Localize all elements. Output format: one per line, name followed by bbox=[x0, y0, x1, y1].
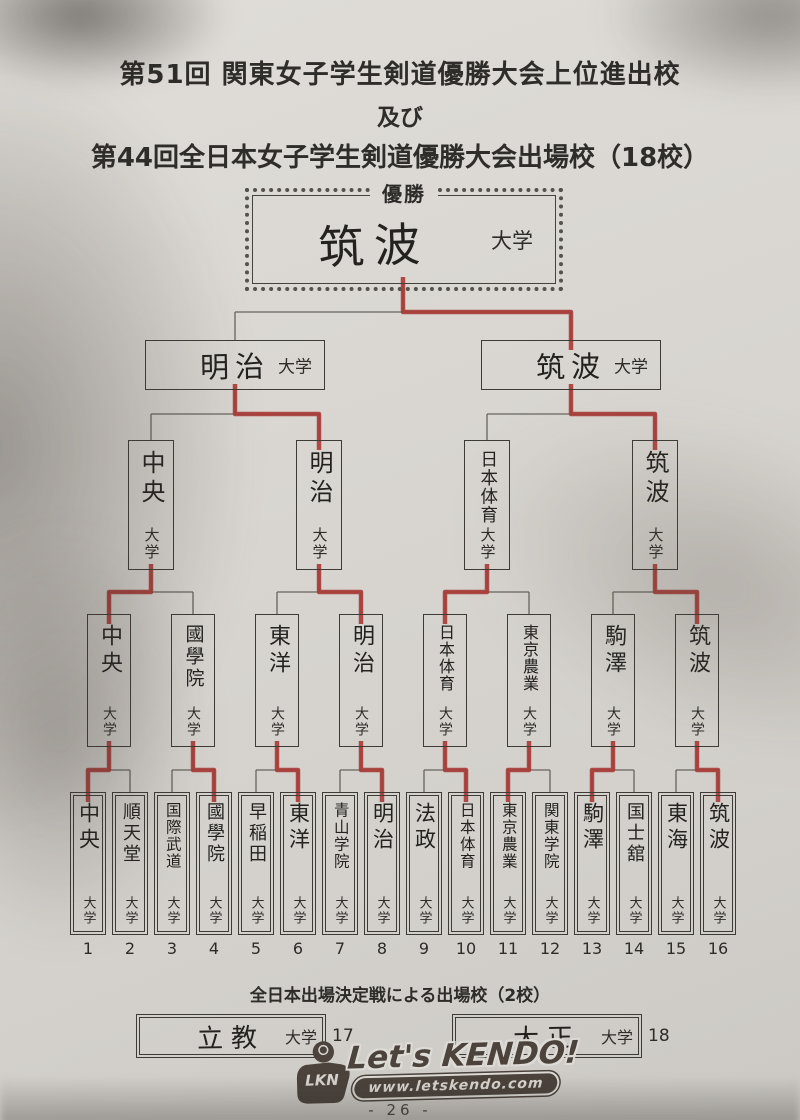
page-number: - 26 - bbox=[0, 1101, 800, 1119]
title-line-2: 及び bbox=[0, 98, 800, 132]
logo-badge-text: LKN bbox=[305, 1071, 339, 1090]
school-name: 中央 bbox=[139, 450, 163, 508]
school-name: 筑波 bbox=[536, 343, 607, 386]
school-name: 東京農業 bbox=[500, 802, 516, 870]
school-name: 日本体育 bbox=[437, 624, 453, 692]
school-suffix: 大学 bbox=[186, 706, 200, 738]
school-name: 國學院 bbox=[184, 624, 203, 690]
bracket-box-qf-1: 中央 大学 bbox=[128, 440, 174, 570]
bracket-box-semifinal-left: 明治 大学 bbox=[145, 340, 325, 390]
school-name: 東洋 bbox=[288, 802, 309, 854]
bracket-box-r16-2: 順天堂 大学 bbox=[112, 792, 148, 935]
logo-url-text: www.letskendo.com bbox=[354, 1073, 559, 1098]
school-name: 駒澤 bbox=[602, 624, 624, 678]
page-title: 第51回 関東女子学生剣道優勝大会上位進出校 及び 第44回全日本女子学生剣道優… bbox=[0, 54, 800, 174]
champion-school-suffix: 大学 bbox=[491, 225, 533, 255]
school-suffix: 大学 bbox=[628, 896, 641, 926]
school-suffix: 大学 bbox=[124, 896, 137, 926]
seed-number: 14 bbox=[616, 939, 652, 958]
school-name: 国士舘 bbox=[625, 802, 643, 865]
school-suffix: 大学 bbox=[586, 896, 599, 926]
champion-school-name: 筑波 bbox=[317, 208, 431, 278]
seed-number: 13 bbox=[574, 939, 610, 958]
school-suffix: 大学 bbox=[334, 896, 347, 926]
school-suffix: 大学 bbox=[438, 706, 452, 738]
bracket-box-r16-9: 法政 大学 bbox=[406, 792, 442, 935]
bracket-box-qf-2: 明治 大学 bbox=[296, 440, 342, 570]
seed-number: 5 bbox=[238, 939, 274, 958]
bracket-box-r8-3: 東洋 大学 bbox=[255, 614, 299, 747]
playoff-caption: 全日本出場決定戦による出場校（2校） bbox=[0, 981, 800, 1006]
school-suffix: 大学 bbox=[376, 896, 389, 926]
school-suffix: 大学 bbox=[278, 353, 312, 378]
champion-box-inner: 優勝 筑波 大学 bbox=[252, 195, 556, 284]
bracket-box-r8-4: 明治 大学 bbox=[339, 614, 383, 747]
bracket-box-r16-7: 青山学院 大学 bbox=[322, 792, 358, 935]
bracket-box-r8-1: 中央 大学 bbox=[87, 614, 131, 747]
bracket-box-r16-5: 早稲田 大学 bbox=[238, 792, 274, 935]
school-name: 立教 bbox=[197, 1017, 266, 1055]
bracket-box-r16-3: 国際武道 大学 bbox=[154, 792, 190, 935]
school-suffix: 大学 bbox=[312, 527, 327, 561]
bracket-box-r16-14: 国士舘 大学 bbox=[616, 792, 652, 935]
seed-number: 16 bbox=[700, 939, 736, 958]
school-suffix: 大学 bbox=[102, 706, 116, 738]
seed-number: 1 bbox=[70, 939, 106, 958]
school-name: 明治 bbox=[200, 343, 271, 386]
school-suffix: 大学 bbox=[544, 896, 557, 926]
school-name: 日本体育 bbox=[478, 450, 496, 524]
tournament-sheet: 第51回 関東女子学生剣道優勝大会上位進出校 及び 第44回全日本女子学生剣道優… bbox=[0, 0, 800, 1120]
school-name: 早稲田 bbox=[247, 802, 265, 865]
bracket-box-r16-8: 明治 大学 bbox=[364, 792, 400, 935]
logo-brand-text: Let's KENDO! bbox=[346, 1034, 580, 1076]
school-name: 駒澤 bbox=[582, 802, 603, 854]
school-name: 関東学院 bbox=[542, 802, 558, 870]
school-name: 筑波 bbox=[708, 802, 729, 854]
school-suffix: 大学 bbox=[460, 896, 473, 926]
school-suffix: 大学 bbox=[166, 896, 179, 926]
school-suffix: 大学 bbox=[250, 896, 263, 926]
bracket-box-r16-10: 日本体育 大学 bbox=[448, 792, 484, 935]
bracket-box-r16-15: 東海 大学 bbox=[658, 792, 694, 935]
school-name: 筑波 bbox=[686, 624, 708, 678]
school-name: 國學院 bbox=[205, 802, 223, 865]
bracket-box-r8-8: 筑波 大学 bbox=[675, 614, 719, 747]
school-suffix: 大学 bbox=[690, 706, 704, 738]
title-line-3: 第44回全日本女子学生剣道優勝大会出場校（18校） bbox=[0, 137, 800, 174]
champion-box: 優勝 筑波 大学 bbox=[245, 188, 563, 291]
seed-number: 2 bbox=[112, 939, 148, 958]
seed-number: 12 bbox=[532, 939, 568, 958]
school-suffix: 大学 bbox=[418, 896, 431, 926]
seed-number: 8 bbox=[364, 939, 400, 958]
bracket-box-qf-3: 日本体育 大学 bbox=[464, 440, 510, 570]
school-suffix: 大学 bbox=[354, 706, 368, 738]
school-suffix: 大学 bbox=[670, 896, 683, 926]
school-name: 明治 bbox=[350, 624, 372, 678]
school-name: 中央 bbox=[98, 624, 120, 678]
school-name: 順天堂 bbox=[121, 802, 139, 865]
seed-number: 11 bbox=[490, 939, 526, 958]
school-suffix: 大学 bbox=[606, 706, 620, 738]
bracket-box-r16-6: 東洋 大学 bbox=[280, 792, 316, 935]
title-line-1: 第51回 関東女子学生剣道優勝大会上位進出校 bbox=[0, 54, 800, 91]
school-suffix: 大学 bbox=[270, 706, 284, 738]
school-suffix: 大学 bbox=[522, 706, 536, 738]
bracket-box-qf-4: 筑波 大学 bbox=[632, 440, 678, 570]
bracket-box-r8-6: 東京農業 大学 bbox=[507, 614, 551, 747]
bracket-box-r16-11: 東京農業 大学 bbox=[490, 792, 526, 935]
school-suffix: 大学 bbox=[648, 527, 663, 561]
school-name: 明治 bbox=[307, 450, 331, 508]
champion-label: 優勝 bbox=[370, 178, 438, 207]
school-suffix: 大学 bbox=[712, 896, 725, 926]
seed-number: 6 bbox=[280, 939, 316, 958]
bracket-box-r16-1: 中央 大学 bbox=[70, 792, 106, 935]
bracket-box-semifinal-right: 筑波 大学 bbox=[481, 340, 661, 390]
school-name: 法政 bbox=[414, 802, 435, 854]
school-name: 青山学院 bbox=[332, 802, 348, 870]
bracket-box-r8-2: 國學院 大学 bbox=[171, 614, 215, 747]
seed-number: 4 bbox=[196, 939, 232, 958]
school-name: 明治 bbox=[372, 802, 393, 854]
school-name: 筑波 bbox=[643, 450, 667, 508]
seed-number: 7 bbox=[322, 939, 358, 958]
school-suffix: 大学 bbox=[82, 896, 95, 926]
bracket-box-r16-12: 関東学院 大学 bbox=[532, 792, 568, 935]
bracket-box-r8-5: 日本体育 大学 bbox=[423, 614, 467, 747]
school-suffix: 大学 bbox=[292, 896, 305, 926]
playoff-number-18: 18 bbox=[648, 1026, 670, 1046]
school-name: 東洋 bbox=[266, 624, 288, 678]
seed-number: 3 bbox=[154, 939, 190, 958]
bracket-box-r16-16: 筑波 大学 bbox=[700, 792, 736, 935]
school-name: 東京農業 bbox=[521, 624, 537, 692]
school-suffix: 大学 bbox=[614, 353, 648, 378]
school-suffix: 大学 bbox=[208, 896, 221, 926]
seed-number: 15 bbox=[658, 939, 694, 958]
seed-number: 9 bbox=[406, 939, 442, 958]
school-suffix: 大学 bbox=[601, 1024, 633, 1048]
bracket-box-r16-4: 國學院 大学 bbox=[196, 792, 232, 935]
school-name: 日本体育 bbox=[458, 802, 474, 870]
bracket-box-r16-13: 駒澤 大学 bbox=[574, 792, 610, 935]
school-name: 中央 bbox=[78, 802, 99, 854]
school-suffix: 大学 bbox=[502, 896, 515, 926]
seed-number: 10 bbox=[448, 939, 484, 958]
bracket-box-r8-7: 駒澤 大学 bbox=[591, 614, 635, 747]
school-suffix: 大学 bbox=[144, 527, 159, 561]
school-name: 東海 bbox=[666, 802, 687, 854]
school-suffix: 大学 bbox=[480, 527, 495, 561]
school-name: 国際武道 bbox=[164, 802, 180, 870]
